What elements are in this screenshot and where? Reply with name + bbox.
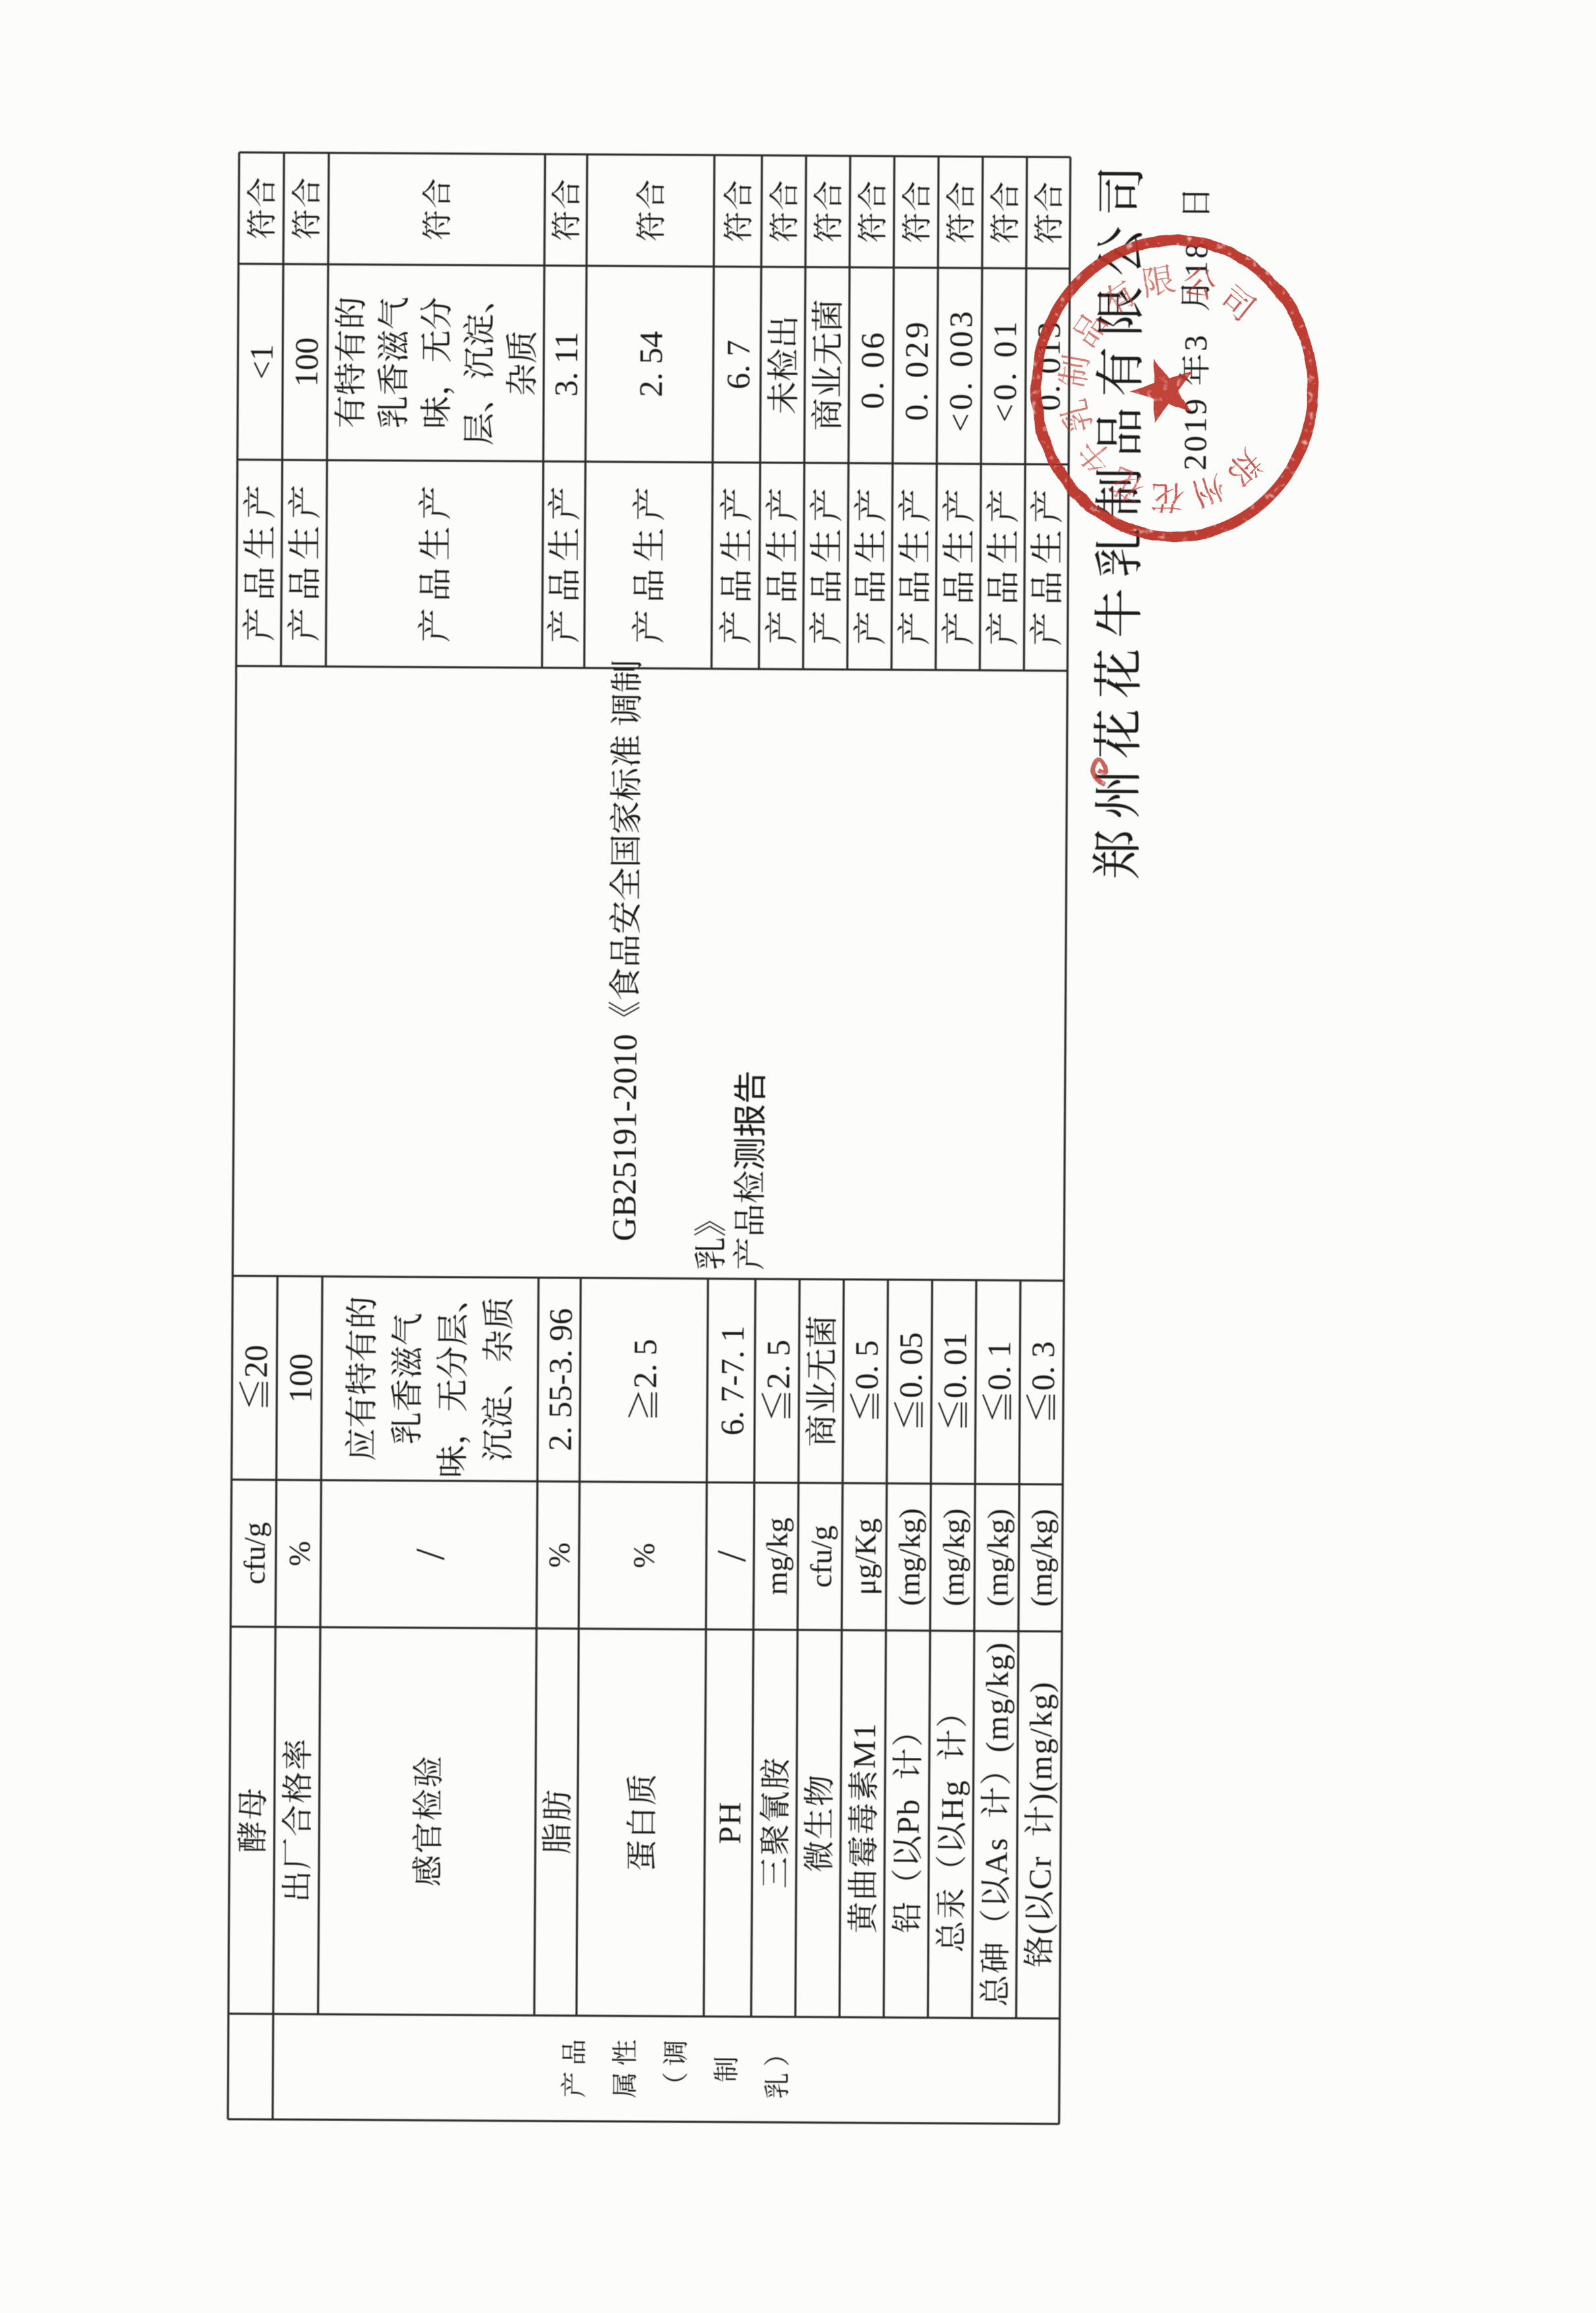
svg-text:(mg/kg): (mg/kg): [937, 1509, 971, 1606]
svg-text:/: /: [408, 1548, 453, 1560]
svg-text:mg/kg: mg/kg: [760, 1517, 794, 1595]
svg-text:)(mg/kg): )(mg/kg): [1023, 1681, 1059, 1804]
svg-text:2. 5: 2. 5: [759, 1340, 796, 1389]
svg-text:(mg/kg): (mg/kg): [980, 1641, 1015, 1753]
svg-text:0. 5: 0. 5: [848, 1340, 885, 1389]
svg-text:0. 01: 0. 01: [936, 1333, 974, 1398]
svg-text:/: /: [709, 1549, 754, 1561]
svg-text:6. 7-7. 1: 6. 7-7. 1: [713, 1325, 751, 1435]
svg-text:GB25191-2010: GB25191-2010: [606, 1034, 644, 1242]
svg-text:Pb: Pb: [891, 1798, 926, 1834]
svg-text:μg/Kg: μg/Kg: [848, 1518, 883, 1596]
svg-text:(: (: [1022, 1923, 1057, 1935]
svg-text:%: %: [542, 1542, 576, 1568]
svg-text:2. 55-3. 96: 2. 55-3. 96: [541, 1308, 579, 1451]
svg-text:100: 100: [281, 1353, 318, 1402]
svg-text:<0. 01: <0. 01: [986, 318, 1023, 423]
svg-text:6. 7: 6. 7: [719, 340, 756, 389]
svg-text:<0. 003: <0. 003: [941, 308, 979, 433]
svg-text:0. 06: 0. 06: [854, 330, 891, 409]
svg-text:0. 3: 0. 3: [1024, 1341, 1061, 1391]
svg-text:20: 20: [237, 1345, 274, 1378]
svg-text:PH: PH: [713, 1801, 748, 1844]
svg-text:Hg: Hg: [935, 1779, 970, 1820]
svg-text:%: %: [627, 1543, 661, 1569]
svg-text:%: %: [282, 1541, 316, 1567]
svg-text:As: As: [979, 1837, 1014, 1875]
svg-text:0. 1: 0. 1: [980, 1341, 1017, 1391]
svg-text:3: 3: [1177, 332, 1214, 351]
svg-text:cfu/g: cfu/g: [804, 1525, 839, 1588]
svg-text:100: 100: [287, 338, 324, 387]
svg-text:3. 11: 3. 11: [547, 332, 585, 396]
svg-text:2. 54: 2. 54: [632, 331, 670, 397]
svg-text:测报告: 测报告: [732, 1070, 769, 1170]
svg-text:(mg/kg): (mg/kg): [981, 1509, 1015, 1606]
svg-text:(mg/kg): (mg/kg): [1024, 1509, 1059, 1606]
svg-text:2. 5: 2. 5: [626, 1339, 663, 1389]
svg-text:Cr: Cr: [1022, 1855, 1057, 1890]
svg-text:0. 05: 0. 05: [892, 1332, 930, 1398]
svg-text:0. 029: 0. 029: [897, 318, 935, 421]
svg-text:(mg/kg): (mg/kg): [893, 1508, 927, 1606]
svg-text:cfu/g: cfu/g: [237, 1522, 272, 1584]
svg-text:<1: <1: [243, 344, 280, 380]
svg-text:M1: M1: [847, 1722, 882, 1769]
